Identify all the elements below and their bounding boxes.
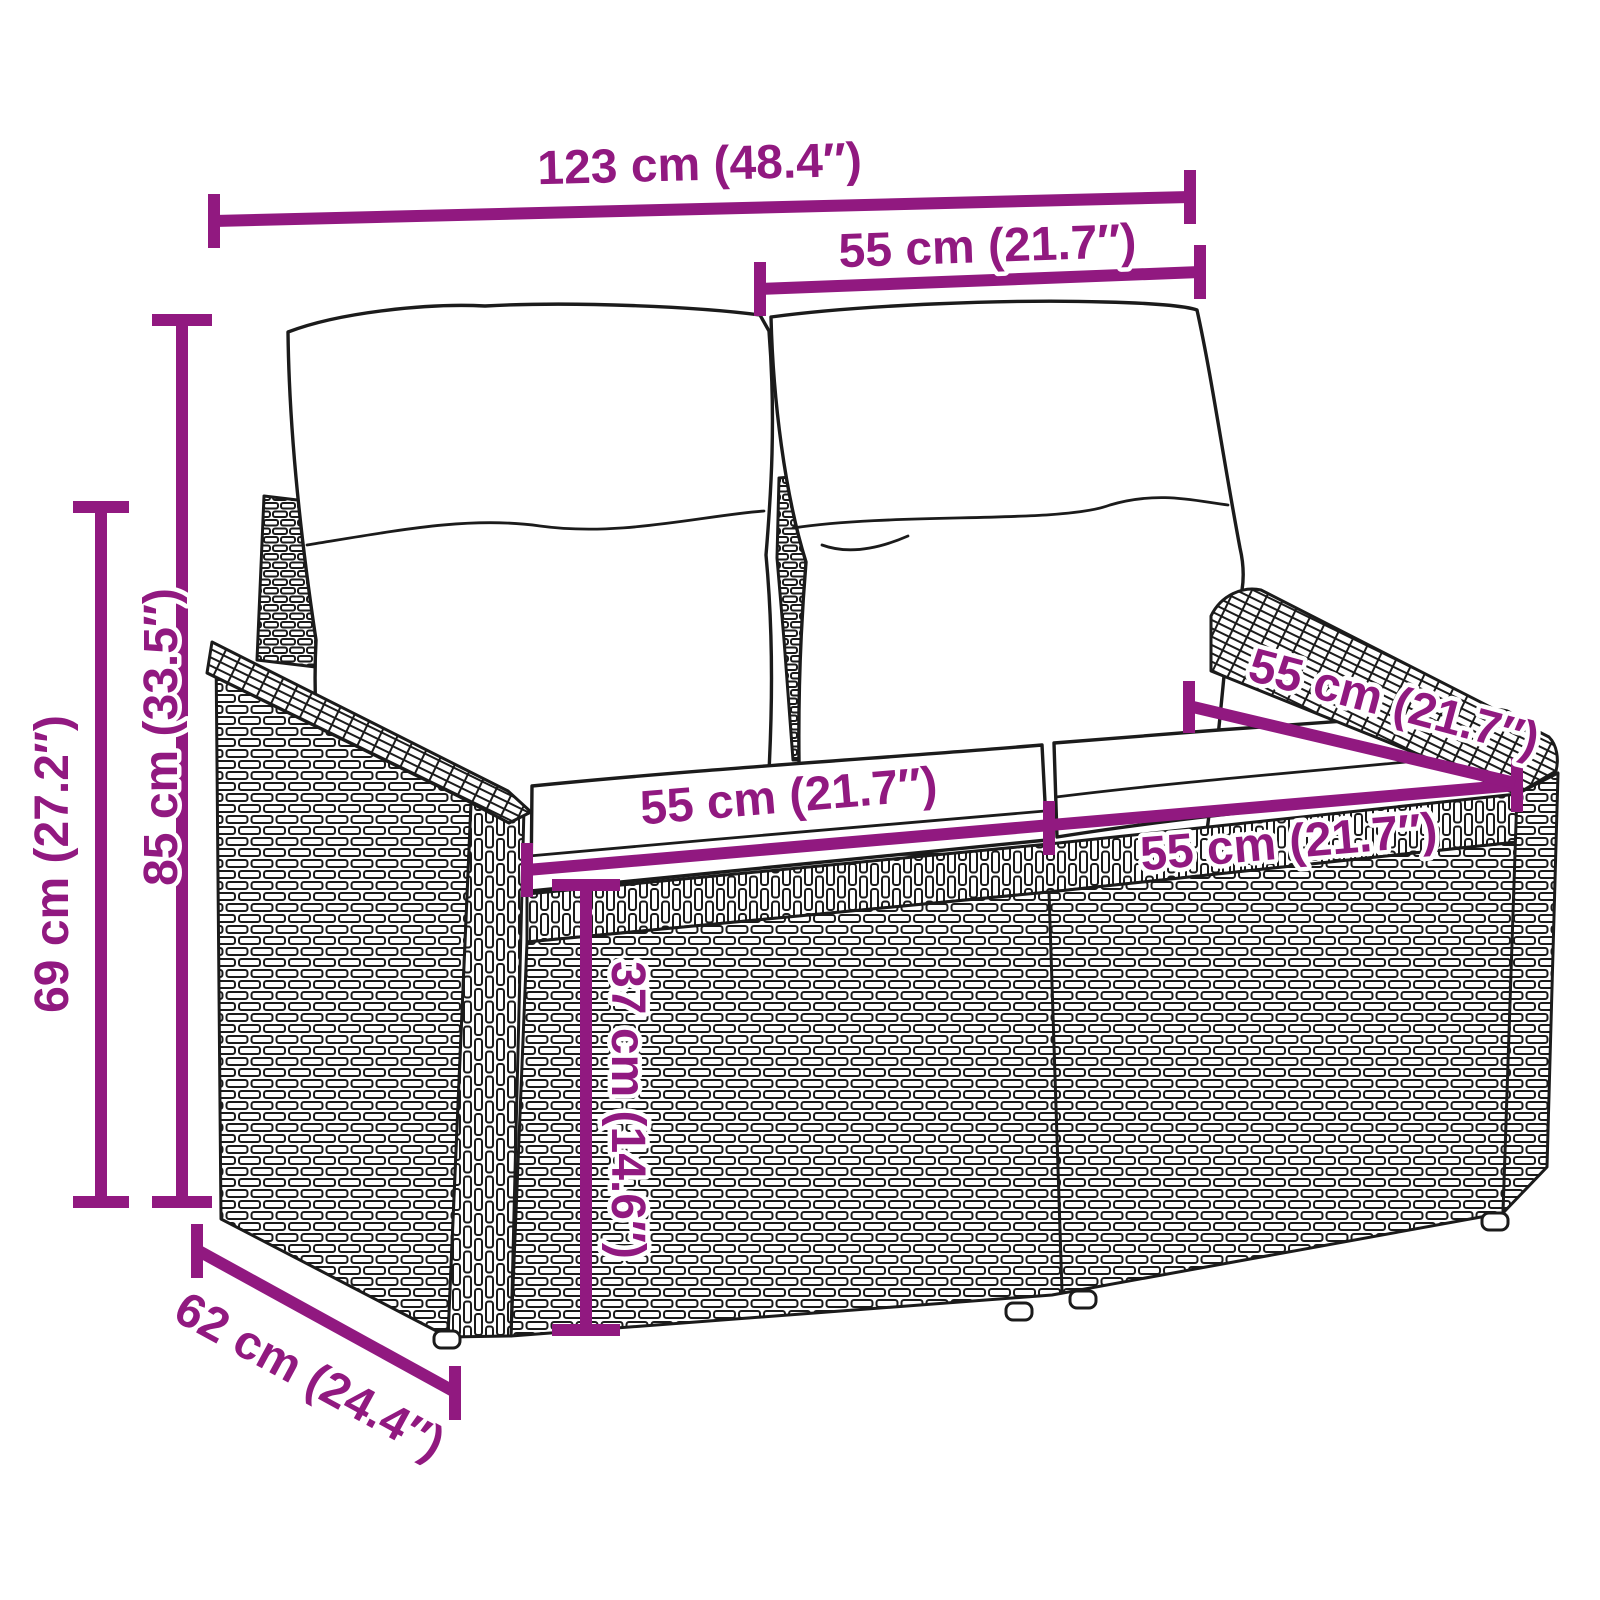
dimension-total-height: 85 cm (33.5″) [135,320,212,1202]
foot [1482,1213,1508,1230]
foot [1070,1291,1096,1308]
dimension-diagram: 123 cm (48.4″) 55 cm (21.7″) 85 cm (33.5… [0,0,1600,1600]
dimension-line [760,272,1200,289]
foot [434,1331,460,1348]
dimension-label: 69 cm (27.2″) [26,715,79,1013]
foot [1006,1303,1032,1320]
dimension-label: 85 cm (33.5″) [135,588,188,886]
dimension-label: 37 cm (14.6″) [601,961,654,1259]
dimension-armrest-height: 69 cm (27.2″) [26,507,129,1202]
product-dimension-diagram: 123 cm (48.4″) 55 cm (21.7″) 85 cm (33.5… [0,0,1600,1600]
dimension-label: 123 cm (48.4″) [537,134,863,195]
dimension-label: 55 cm (21.7″) [838,215,1137,278]
